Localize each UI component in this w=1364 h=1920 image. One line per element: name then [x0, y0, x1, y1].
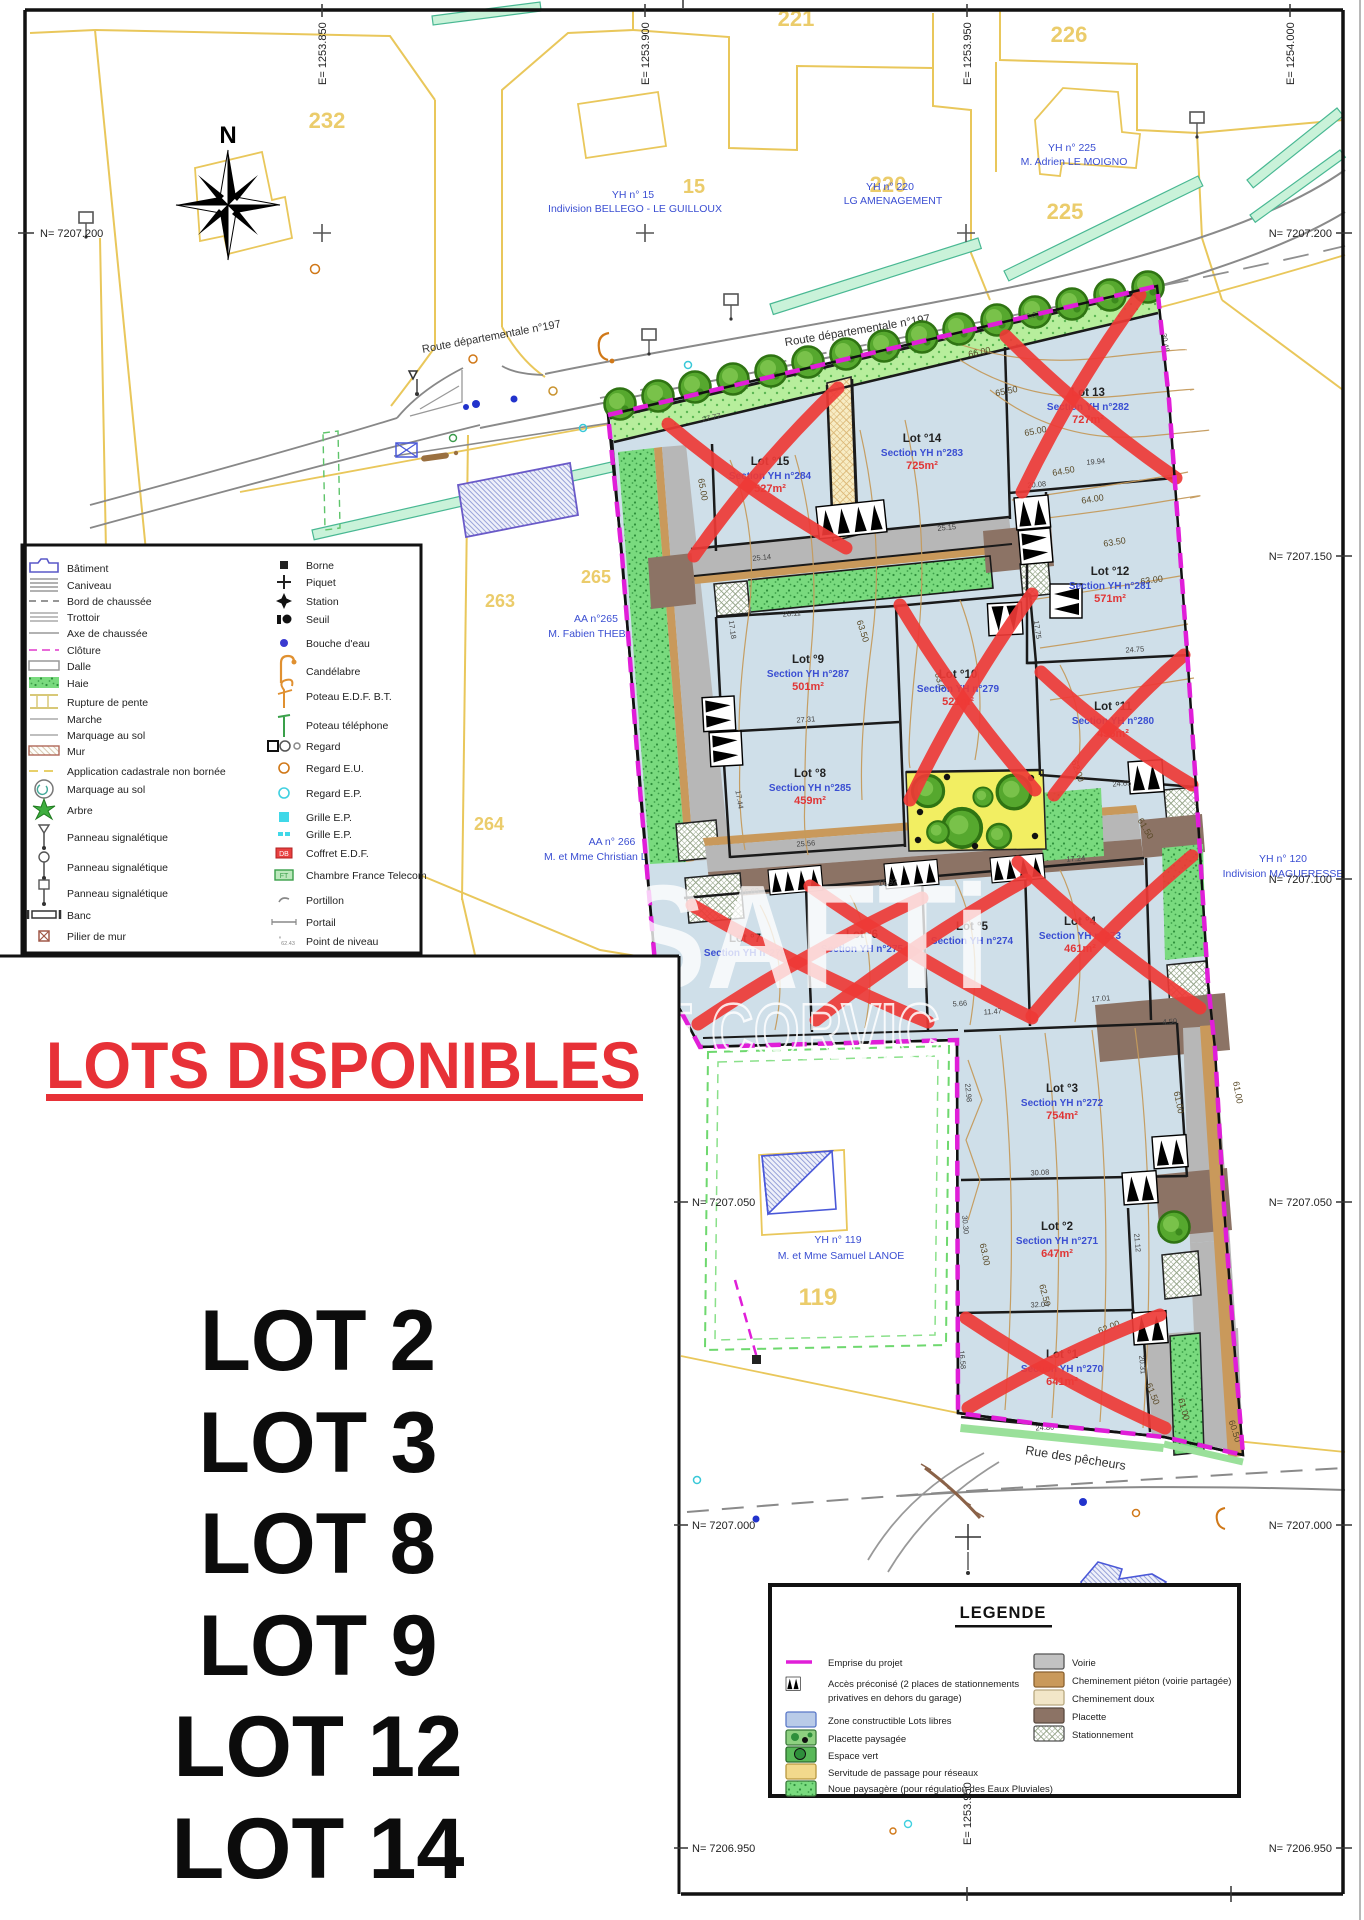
svg-text:Section YH n°271: Section YH n°271	[1016, 1236, 1099, 1247]
svg-text:Stationnement: Stationnement	[1072, 1730, 1134, 1741]
svg-text:725m²: 725m²	[906, 460, 938, 472]
svg-text:Section YH n°272: Section YH n°272	[1021, 1098, 1104, 1109]
svg-text:30.30: 30.30	[960, 1215, 971, 1234]
svg-text:N= 7207.050: N= 7207.050	[692, 1197, 755, 1209]
svg-text:Borne: Borne	[306, 560, 334, 572]
svg-text:Lot °3: Lot °3	[1046, 1083, 1078, 1095]
svg-text:Placette: Placette	[1072, 1712, 1106, 1723]
svg-text:LOT 14: LOT 14	[172, 1801, 465, 1897]
svg-text:Poteau téléphone: Poteau téléphone	[306, 720, 388, 732]
svg-text:Lot °8: Lot °8	[794, 768, 827, 780]
svg-text:FT: FT	[280, 873, 289, 880]
svg-text:Clôture: Clôture	[67, 645, 101, 657]
svg-text:Trottoir: Trottoir	[67, 612, 100, 624]
svg-text:25.56: 25.56	[796, 838, 815, 848]
svg-text:Candélabre: Candélabre	[306, 666, 360, 678]
svg-text:E= 1253.950: E= 1253.950	[962, 1782, 974, 1845]
svg-text:Application cadastrale non bor: Application cadastrale non bornée	[67, 766, 226, 778]
svg-text:265: 265	[581, 567, 611, 587]
svg-text:Arbre: Arbre	[67, 805, 93, 817]
svg-text:Section YH n°287: Section YH n°287	[767, 669, 850, 680]
svg-text:15: 15	[683, 176, 705, 198]
svg-text:Espace vert: Espace vert	[828, 1751, 879, 1762]
svg-text:Section YH n°283: Section YH n°283	[881, 448, 964, 459]
svg-text:AA n°265: AA n°265	[574, 613, 618, 625]
svg-text:Regard E.P.: Regard E.P.	[306, 788, 362, 800]
svg-text:E= 1253.900: E= 1253.900	[640, 22, 652, 85]
svg-text:privatives en dehors du garage: privatives en dehors du garage)	[828, 1693, 962, 1704]
svg-text:M. et Mme Samuel LANOE: M. et Mme Samuel LANOE	[778, 1250, 905, 1262]
svg-text:Marche: Marche	[67, 714, 102, 726]
svg-text:501m²: 501m²	[792, 681, 824, 693]
svg-text:Axe de chaussée: Axe de chaussée	[67, 628, 148, 640]
svg-text:232: 232	[309, 108, 346, 133]
svg-text:Point de niveau: Point de niveau	[306, 936, 379, 948]
svg-text:N= 7207.200: N= 7207.200	[40, 228, 103, 240]
svg-text:Coffret E.D.F.: Coffret E.D.F.	[306, 848, 369, 860]
svg-text:24.75: 24.75	[1125, 644, 1144, 654]
svg-text:Caniveau: Caniveau	[67, 580, 112, 592]
svg-text:459m²: 459m²	[794, 795, 826, 807]
svg-text:27.31: 27.31	[796, 714, 815, 724]
svg-text:22.98: 22.98	[963, 1083, 974, 1102]
svg-text:N= 7207.050: N= 7207.050	[1269, 1197, 1332, 1209]
svg-text:Chambre France Telecom: Chambre France Telecom	[306, 870, 427, 882]
svg-text:Placette paysagée: Placette paysagée	[828, 1734, 906, 1745]
svg-text:LEGENDE: LEGENDE	[960, 1604, 1047, 1622]
svg-text:N= 7207.150: N= 7207.150	[1269, 551, 1332, 563]
svg-text:Section YH n°285: Section YH n°285	[769, 783, 852, 794]
svg-text:Poteau E.D.F. B.T.: Poteau E.D.F. B.T.	[306, 691, 392, 703]
svg-text:LOT 9: LOT 9	[199, 1598, 438, 1694]
svg-text:Grille E.P.: Grille E.P.	[306, 812, 352, 824]
svg-text:17.24: 17.24	[1066, 853, 1085, 863]
svg-text:754m²: 754m²	[1046, 1110, 1078, 1122]
svg-text:225: 225	[1047, 199, 1084, 224]
svg-text:264: 264	[474, 814, 504, 834]
svg-text:Seuil: Seuil	[306, 614, 329, 626]
svg-text:Regard E.U.: Regard E.U.	[306, 763, 364, 775]
svg-text:YH n° 15: YH n° 15	[612, 189, 654, 201]
svg-text:Portillon: Portillon	[306, 895, 344, 907]
svg-text:Cheminement piéton (voirie par: Cheminement piéton (voirie partagée)	[1072, 1676, 1231, 1687]
svg-text:263: 263	[485, 591, 515, 611]
svg-text:Haie: Haie	[67, 678, 89, 690]
svg-text:571m²: 571m²	[1094, 593, 1126, 605]
svg-text:N: N	[219, 122, 236, 149]
svg-text:Accès préconisé (2 places de s: Accès préconisé (2 places de stationneme…	[828, 1679, 1019, 1690]
svg-text:62.43: 62.43	[281, 941, 295, 947]
svg-text:Lot °2: Lot °2	[1041, 1221, 1073, 1233]
svg-text:AA n° 266: AA n° 266	[589, 836, 636, 848]
svg-text:N= 7206.950: N= 7206.950	[1269, 1843, 1332, 1855]
svg-text:N= 7206.950: N= 7206.950	[692, 1843, 755, 1855]
svg-text:Lot °9: Lot °9	[792, 654, 824, 666]
svg-text:226: 226	[1051, 22, 1088, 47]
svg-text:YH n° 120: YH n° 120	[1259, 853, 1307, 865]
svg-text:Lot °14: Lot °14	[903, 433, 942, 445]
svg-text:119: 119	[799, 1284, 838, 1311]
svg-text:Cheminement doux: Cheminement doux	[1072, 1694, 1155, 1705]
svg-text:LOT 3: LOT 3	[199, 1395, 438, 1491]
svg-text:Indivision BELLEGO - LE GUILLO: Indivision BELLEGO - LE GUILLOUX	[548, 203, 722, 215]
svg-text:N= 7207.100: N= 7207.100	[1269, 874, 1332, 886]
svg-text:Panneau signalétique: Panneau signalétique	[67, 832, 168, 844]
svg-text:Section YH n°281: Section YH n°281	[1069, 581, 1152, 592]
svg-text:17.01: 17.01	[1091, 993, 1110, 1003]
svg-text:21.12: 21.12	[1132, 1233, 1143, 1252]
svg-text:Marquage au sol: Marquage au sol	[67, 730, 145, 742]
svg-text:E= 1254.000: E= 1254.000	[1285, 22, 1297, 85]
svg-text:LOTS DISPONIBLES: LOTS DISPONIBLES	[46, 1028, 641, 1102]
svg-text:Zone constructible Lots libres: Zone constructible Lots libres	[828, 1716, 952, 1727]
svg-text:Emprise du projet: Emprise du projet	[828, 1658, 903, 1669]
svg-text:Dalle: Dalle	[67, 661, 91, 673]
svg-text:Panneau signalétique: Panneau signalétique	[67, 888, 168, 900]
svg-text:24.65: 24.65	[1112, 778, 1131, 788]
svg-text:19.94: 19.94	[1086, 456, 1105, 467]
svg-text:20.31: 20.31	[1137, 1355, 1148, 1374]
svg-text:Bord de chaussée: Bord de chaussée	[67, 596, 152, 608]
svg-text:30.08: 30.08	[1030, 1168, 1049, 1178]
svg-text:DB: DB	[279, 851, 289, 858]
svg-text:647m²: 647m²	[1041, 1248, 1073, 1260]
svg-text:Marquage au sol: Marquage au sol	[67, 784, 145, 796]
svg-text:YH n° 225: YH n° 225	[1048, 142, 1096, 154]
svg-text:N= 7207.000: N= 7207.000	[692, 1520, 755, 1532]
svg-text:Grille E.P.: Grille E.P.	[306, 829, 352, 841]
svg-text:LOT 2: LOT 2	[200, 1293, 436, 1389]
svg-text:M. Adrien LE MOIGNO: M. Adrien LE MOIGNO	[1021, 156, 1128, 168]
svg-text:LG AMENAGEMENT: LG AMENAGEMENT	[844, 195, 943, 207]
svg-text:Panneau signalétique: Panneau signalétique	[67, 862, 168, 874]
svg-text:E CORVIC: E CORVIC	[655, 987, 940, 1075]
svg-text:Piquet: Piquet	[306, 577, 336, 589]
svg-text:YH n° 220: YH n° 220	[866, 181, 914, 193]
svg-text:32.04: 32.04	[1030, 1300, 1049, 1310]
svg-text:Pilier de mur: Pilier de mur	[67, 931, 126, 943]
svg-text:Bâtiment: Bâtiment	[67, 563, 109, 575]
svg-text:LOT 8: LOT 8	[200, 1496, 436, 1592]
svg-text:E= 1253.950: E= 1253.950	[962, 22, 974, 85]
svg-text:Lot °12: Lot °12	[1091, 566, 1129, 578]
svg-text:Noue paysagère (pour régulatio: Noue paysagère (pour régulation des Eaux…	[828, 1784, 1053, 1795]
svg-text:Station: Station	[306, 596, 339, 608]
svg-text:E= 1253.850: E= 1253.850	[317, 22, 329, 85]
svg-text:Banc: Banc	[67, 910, 91, 922]
svg-text:Portail: Portail	[306, 917, 336, 929]
svg-text:Mur: Mur	[67, 746, 86, 758]
svg-text:Rupture de pente: Rupture de pente	[67, 697, 148, 709]
svg-text:Voirie: Voirie	[1072, 1658, 1096, 1669]
svg-text:4.50: 4.50	[1162, 1017, 1177, 1027]
svg-text:N= 7207.000: N= 7207.000	[1269, 1520, 1332, 1532]
svg-text:28.11: 28.11	[782, 608, 801, 619]
svg-text:LOT 12: LOT 12	[174, 1699, 463, 1795]
svg-text:YH n° 119: YH n° 119	[814, 1234, 861, 1246]
svg-text:Bouche d'eau: Bouche d'eau	[306, 638, 370, 650]
svg-text:N= 7207.200: N= 7207.200	[1269, 228, 1332, 240]
svg-text:Servitude de passage pour rése: Servitude de passage pour réseaux	[828, 1768, 978, 1779]
svg-text:Regard: Regard	[306, 741, 341, 753]
